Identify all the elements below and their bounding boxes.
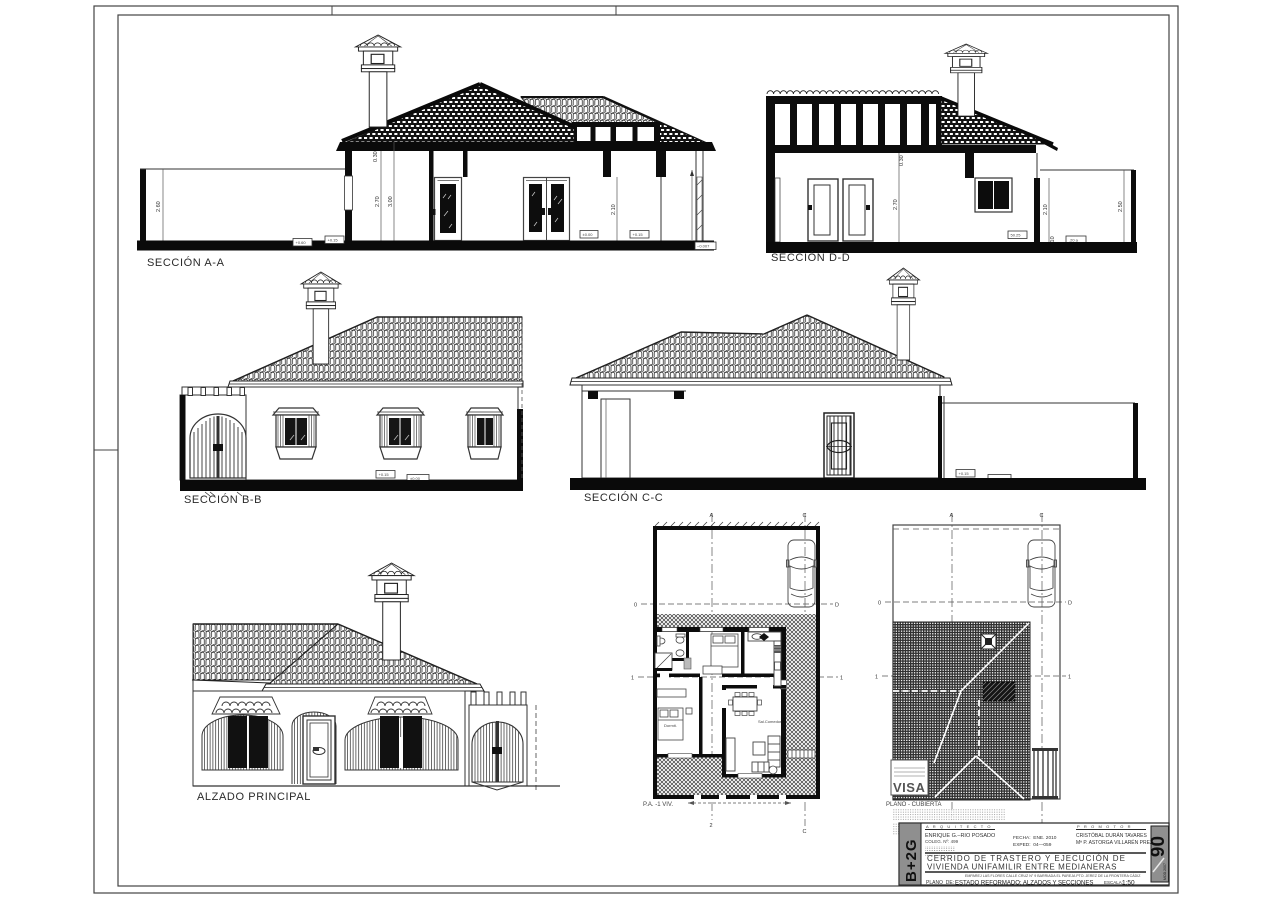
svg-text:CRISTÓBAL DURÁN TAVARES: CRISTÓBAL DURÁN TAVARES — [1076, 832, 1148, 839]
svg-text:A: A — [710, 513, 714, 519]
svg-text:2.10: 2.10 — [1043, 204, 1049, 215]
svg-text:Sal.Comedor: Sal.Comedor — [758, 719, 782, 724]
svg-text:1: 1 — [631, 676, 634, 682]
svg-text:ESCALA:: ESCALA: — [1104, 880, 1123, 885]
svg-text:+0.15: +0.15 — [379, 472, 390, 477]
svg-text:B+2G: B+2G — [903, 838, 920, 882]
svg-text:−0.007: −0.007 — [697, 244, 710, 249]
svg-text:+0.15: +0.15 — [328, 238, 339, 243]
svg-text:2: 2 — [710, 823, 713, 829]
svg-text:0.30: 0.30 — [899, 155, 905, 166]
svg-text:MOD.2007: MOD.2007 — [1163, 863, 1167, 880]
svg-text:1: 1 — [875, 675, 878, 681]
svg-text:2.60: 2.60 — [156, 201, 162, 212]
svg-text:FECHA: ENE. 2010: FECHA: ENE. 2010 — [1013, 835, 1057, 841]
svg-text:±0.00: ±0.00 — [583, 232, 594, 237]
svg-text:+0.60: +0.60 — [296, 240, 307, 245]
svg-text:1:50: 1:50 — [1122, 880, 1135, 887]
svg-text:EMPAREJ LAS FLORES CALLE CRUZ: EMPAREJ LAS FLORES CALLE CRUZ N° 9 BARRI… — [965, 874, 1141, 878]
svg-text:1: 1 — [840, 676, 843, 682]
svg-text:2.70: 2.70 — [893, 199, 899, 210]
svg-text:COLEG. Nº: 499: COLEG. Nº: 499 — [925, 839, 959, 844]
svg-text:2.10: 2.10 — [611, 204, 617, 215]
svg-text:PLANO - CUBIERTA: PLANO - CUBIERTA — [886, 802, 941, 808]
svg-text:SECCIÓN C-C: SECCIÓN C-C — [584, 491, 663, 504]
svg-text:EXPED: 04—059: EXPED: 04—059 — [1013, 842, 1052, 848]
svg-text:+0.15: +0.15 — [959, 471, 970, 476]
svg-text:+0.15: +0.15 — [633, 232, 644, 237]
svg-text:A: A — [950, 513, 954, 519]
svg-text:C: C — [803, 513, 807, 519]
svg-text:D: D — [835, 603, 839, 609]
svg-text:3.00: 3.00 — [388, 196, 394, 207]
svg-text:VISA: VISA — [893, 780, 925, 795]
svg-text:1: 1 — [1068, 675, 1071, 681]
svg-text:2.70: 2.70 — [375, 196, 381, 207]
svg-text:06: 06 — [1146, 836, 1167, 857]
svg-text:0: 0 — [634, 603, 637, 609]
svg-text:Dormit.: Dormit. — [664, 723, 677, 728]
svg-text:SECCIÓN D-D: SECCIÓN D-D — [771, 251, 850, 264]
svg-text:SECCIÓN B-B: SECCIÓN B-B — [184, 493, 262, 506]
svg-text:2.50: 2.50 — [1118, 201, 1124, 212]
svg-text:ALZADO PRINCIPAL: ALZADO PRINCIPAL — [197, 791, 311, 803]
svg-text:0.30: 0.30 — [373, 151, 379, 162]
svg-text:P R O M O T O R: P R O M O T O R — [1077, 824, 1132, 829]
svg-text:ESTADO REFORMADO: ALZADOS Y SE: ESTADO REFORMADO: ALZADOS Y SECCIONES — [955, 881, 1093, 887]
svg-text:50.25: 50.25 — [1011, 233, 1022, 238]
svg-text:VIVIENDA UNIFAMILIR ENTRE MEDI: VIVIENDA UNIFAMILIR ENTRE MEDIANERAS — [927, 863, 1117, 872]
svg-text:Mª P. ASTORGA VILLARÉN PREZ: Mª P. ASTORGA VILLARÉN PREZ — [1076, 839, 1153, 846]
svg-text:C: C — [803, 829, 807, 835]
svg-text:C: C — [1040, 513, 1044, 519]
svg-text:A R Q U I T E C T O: A R Q U I T E C T O — [926, 824, 992, 829]
svg-text:SECCIÓN A-A: SECCIÓN A-A — [147, 256, 225, 269]
svg-text:0: 0 — [878, 601, 881, 607]
svg-text:.20 a: .20 a — [1069, 238, 1079, 243]
svg-text:D: D — [1068, 601, 1072, 607]
svg-text:PLANO DE:: PLANO DE: — [926, 880, 954, 886]
svg-text:P.A. -1 VIV.: P.A. -1 VIV. — [643, 802, 673, 808]
